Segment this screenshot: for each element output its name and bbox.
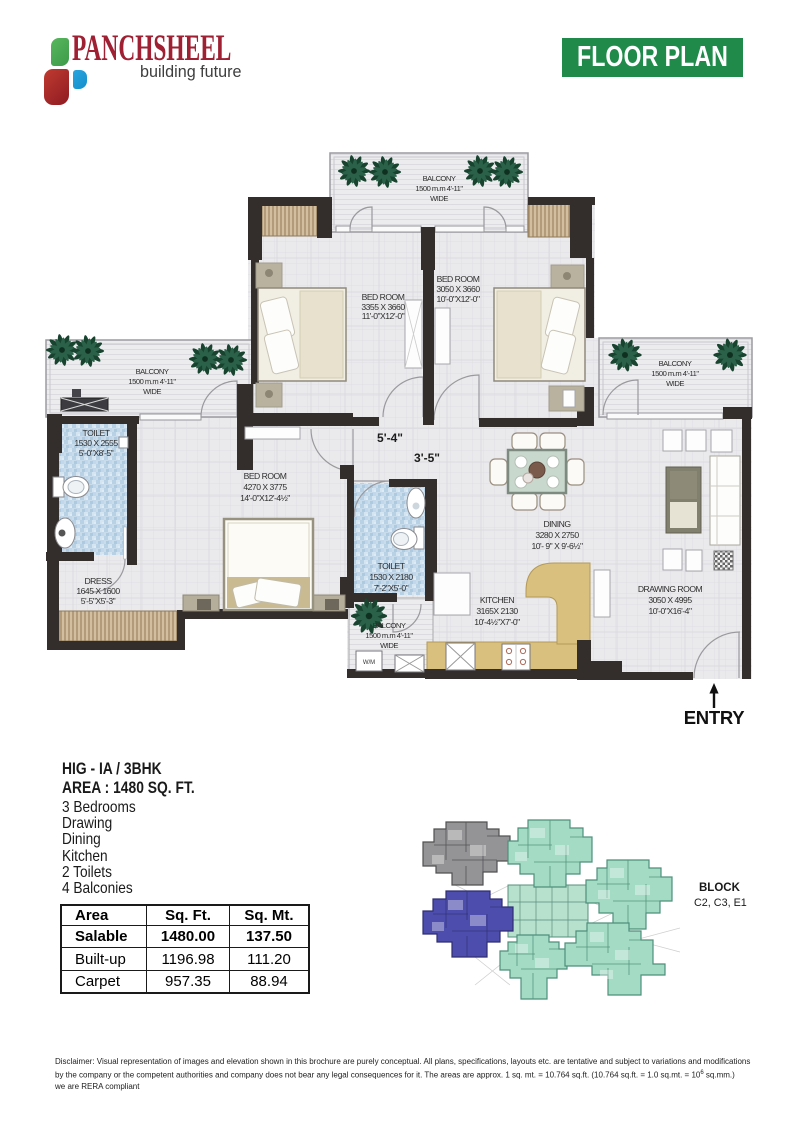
svg-text:10'-0"X12'-0": 10'-0"X12'-0" bbox=[436, 294, 479, 304]
svg-text:3'-5": 3'-5" bbox=[414, 451, 440, 465]
svg-text:KITCHEN: KITCHEN bbox=[480, 595, 515, 605]
svg-text:BALCONY: BALCONY bbox=[136, 367, 169, 376]
svg-text:BED ROOM: BED ROOM bbox=[362, 292, 405, 302]
svg-text:5'-0"X8'-5": 5'-0"X8'-5" bbox=[79, 448, 114, 458]
svg-text:10'-0"X16'-4": 10'-0"X16'-4" bbox=[648, 606, 691, 616]
svg-text:DRESS: DRESS bbox=[84, 576, 112, 586]
svg-text:3165X 2130: 3165X 2130 bbox=[476, 606, 518, 616]
svg-text:1645 X 1600: 1645 X 1600 bbox=[76, 586, 120, 596]
svg-text:5'-4": 5'-4" bbox=[377, 431, 403, 445]
svg-text:1500 m.m 4'-11": 1500 m.m 4'-11" bbox=[651, 369, 699, 378]
svg-text:BALCONY: BALCONY bbox=[373, 621, 406, 630]
svg-text:1500 m.m 4'-11": 1500 m.m 4'-11" bbox=[365, 631, 413, 640]
svg-text:10'-4½"X7'-0": 10'-4½"X7'-0" bbox=[474, 617, 520, 627]
svg-text:DINING: DINING bbox=[543, 519, 571, 529]
svg-text:3050 X 3660: 3050 X 3660 bbox=[436, 284, 480, 294]
svg-text:5'-5"X5'-3": 5'-5"X5'-3" bbox=[81, 596, 116, 606]
svg-text:BED ROOM: BED ROOM bbox=[437, 274, 480, 284]
svg-text:7'-2"X5'-0": 7'-2"X5'-0" bbox=[374, 583, 409, 593]
svg-text:WIDE: WIDE bbox=[380, 641, 398, 650]
svg-text:WIDE: WIDE bbox=[666, 379, 684, 388]
svg-text:1500 m.m 4'-11": 1500 m.m 4'-11" bbox=[128, 377, 176, 386]
svg-text:3050 X 4995: 3050 X 4995 bbox=[648, 595, 692, 605]
svg-text:WIDE: WIDE bbox=[430, 194, 448, 203]
svg-text:1530 X 2555: 1530 X 2555 bbox=[74, 438, 118, 448]
svg-text:BED ROOM: BED ROOM bbox=[244, 471, 287, 481]
svg-text:DRAWING ROOM: DRAWING ROOM bbox=[638, 584, 703, 594]
svg-text:1530 X 2180: 1530 X 2180 bbox=[369, 572, 413, 582]
svg-text:14'-0"X12'-4½": 14'-0"X12'-4½" bbox=[240, 493, 290, 503]
svg-text:BALCONY: BALCONY bbox=[423, 174, 456, 183]
svg-text:BALCONY: BALCONY bbox=[659, 359, 692, 368]
svg-text:ENTRY: ENTRY bbox=[684, 707, 745, 728]
svg-text:TOILET: TOILET bbox=[83, 428, 111, 438]
svg-text:10'- 9" X 9'-6½": 10'- 9" X 9'-6½" bbox=[531, 541, 583, 551]
svg-text:11'-0"X12'-0": 11'-0"X12'-0" bbox=[362, 311, 405, 321]
svg-text:TOILET: TOILET bbox=[378, 561, 406, 571]
svg-text:3280 X 2750: 3280 X 2750 bbox=[535, 530, 579, 540]
svg-text:4270 X 3775: 4270 X 3775 bbox=[243, 482, 287, 492]
svg-text:1500 m.m 4'-11": 1500 m.m 4'-11" bbox=[415, 184, 463, 193]
svg-text:WIDE: WIDE bbox=[143, 387, 161, 396]
svg-text:W/M: W/M bbox=[363, 660, 375, 666]
